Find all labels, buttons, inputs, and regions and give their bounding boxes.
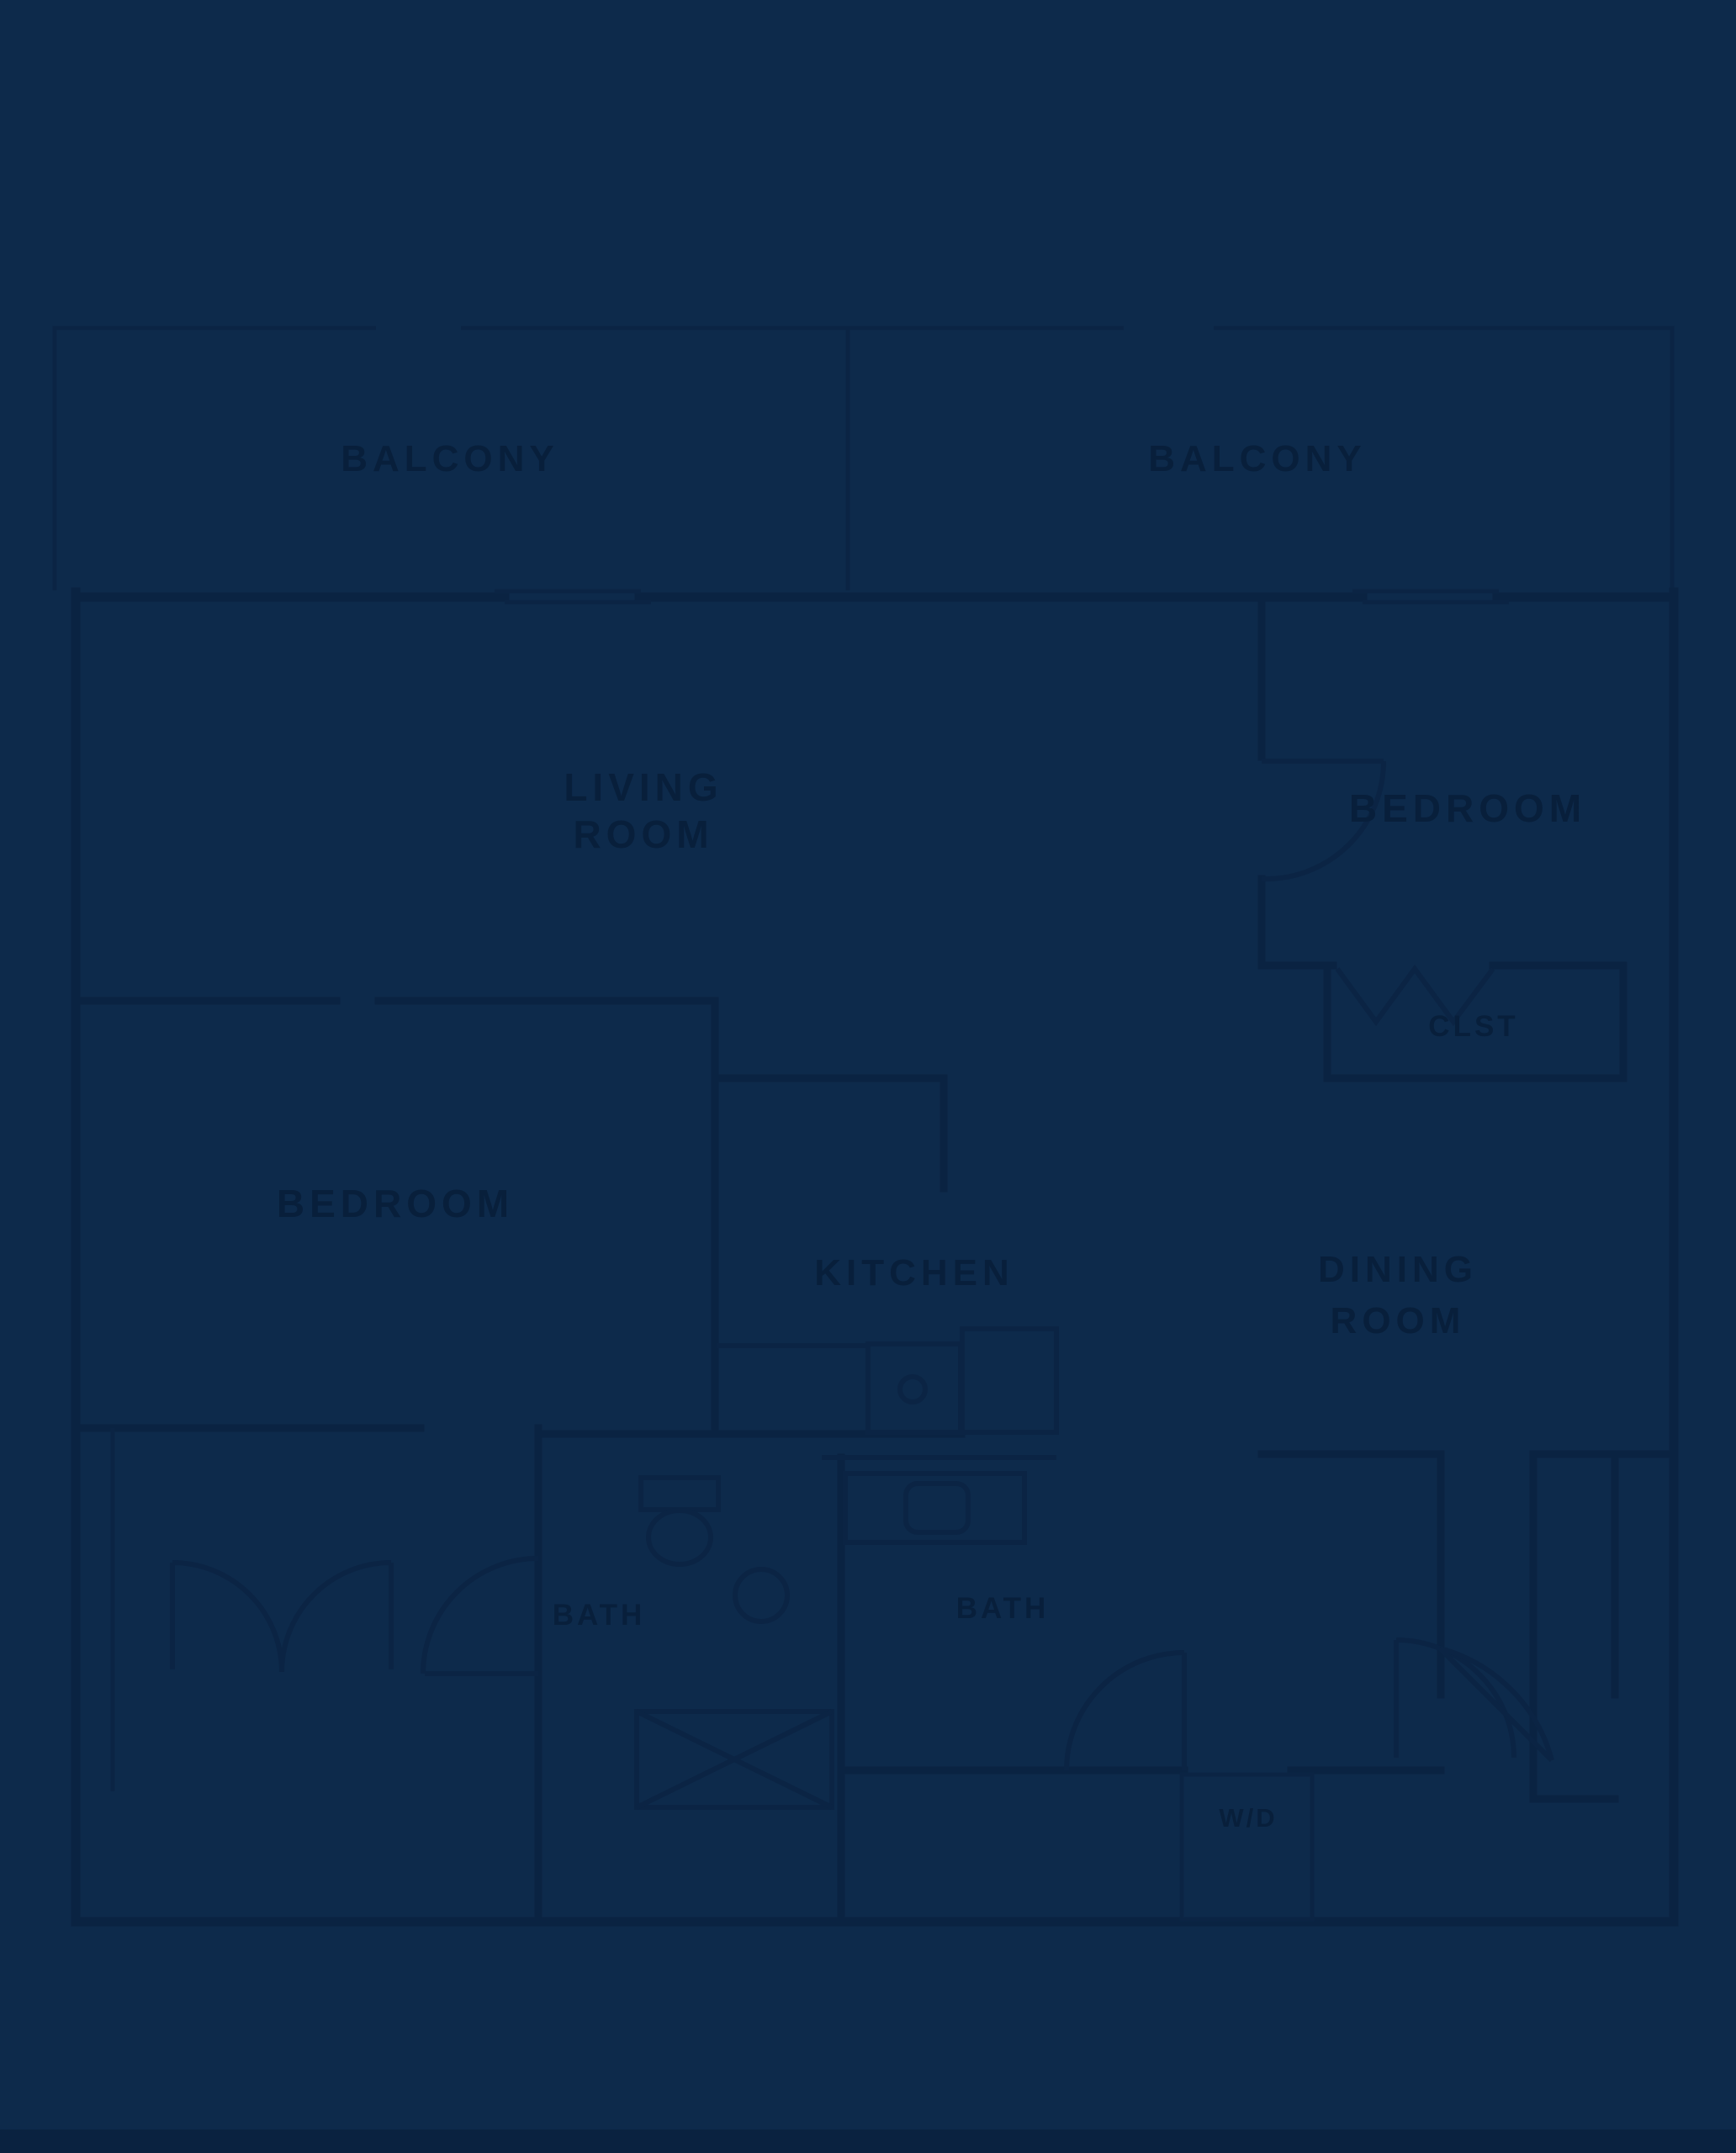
floor-plan: BALCONY BALCONY LIVING ROOM BEDROOM CLST… xyxy=(0,0,1736,2153)
living-room-label-line2: ROOM xyxy=(573,812,713,856)
kitchen-label: KITCHEN xyxy=(814,1252,1014,1293)
balcony-right-label: BALCONY xyxy=(1148,438,1367,479)
living-room-label-line1: LIVING xyxy=(564,765,722,809)
bedroom-left-label: BEDROOM xyxy=(277,1182,514,1225)
dining-room-label-line1: DINING xyxy=(1318,1249,1478,1290)
bedroom-right-label: BEDROOM xyxy=(1349,786,1586,830)
balcony-left-label: BALCONY xyxy=(341,438,559,479)
dining-room-label-line2: ROOM xyxy=(1331,1300,1466,1341)
bath-right-label: BATH xyxy=(956,1592,1050,1625)
bath-left-label: BATH xyxy=(553,1599,646,1632)
closet-label: CLST xyxy=(1428,1010,1518,1043)
floor-plan-canvas: BALCONY BALCONY LIVING ROOM BEDROOM CLST… xyxy=(0,0,1736,2153)
bottom-edge-band xyxy=(0,2129,1736,2153)
laundry-label: W/D xyxy=(1219,1803,1277,1833)
